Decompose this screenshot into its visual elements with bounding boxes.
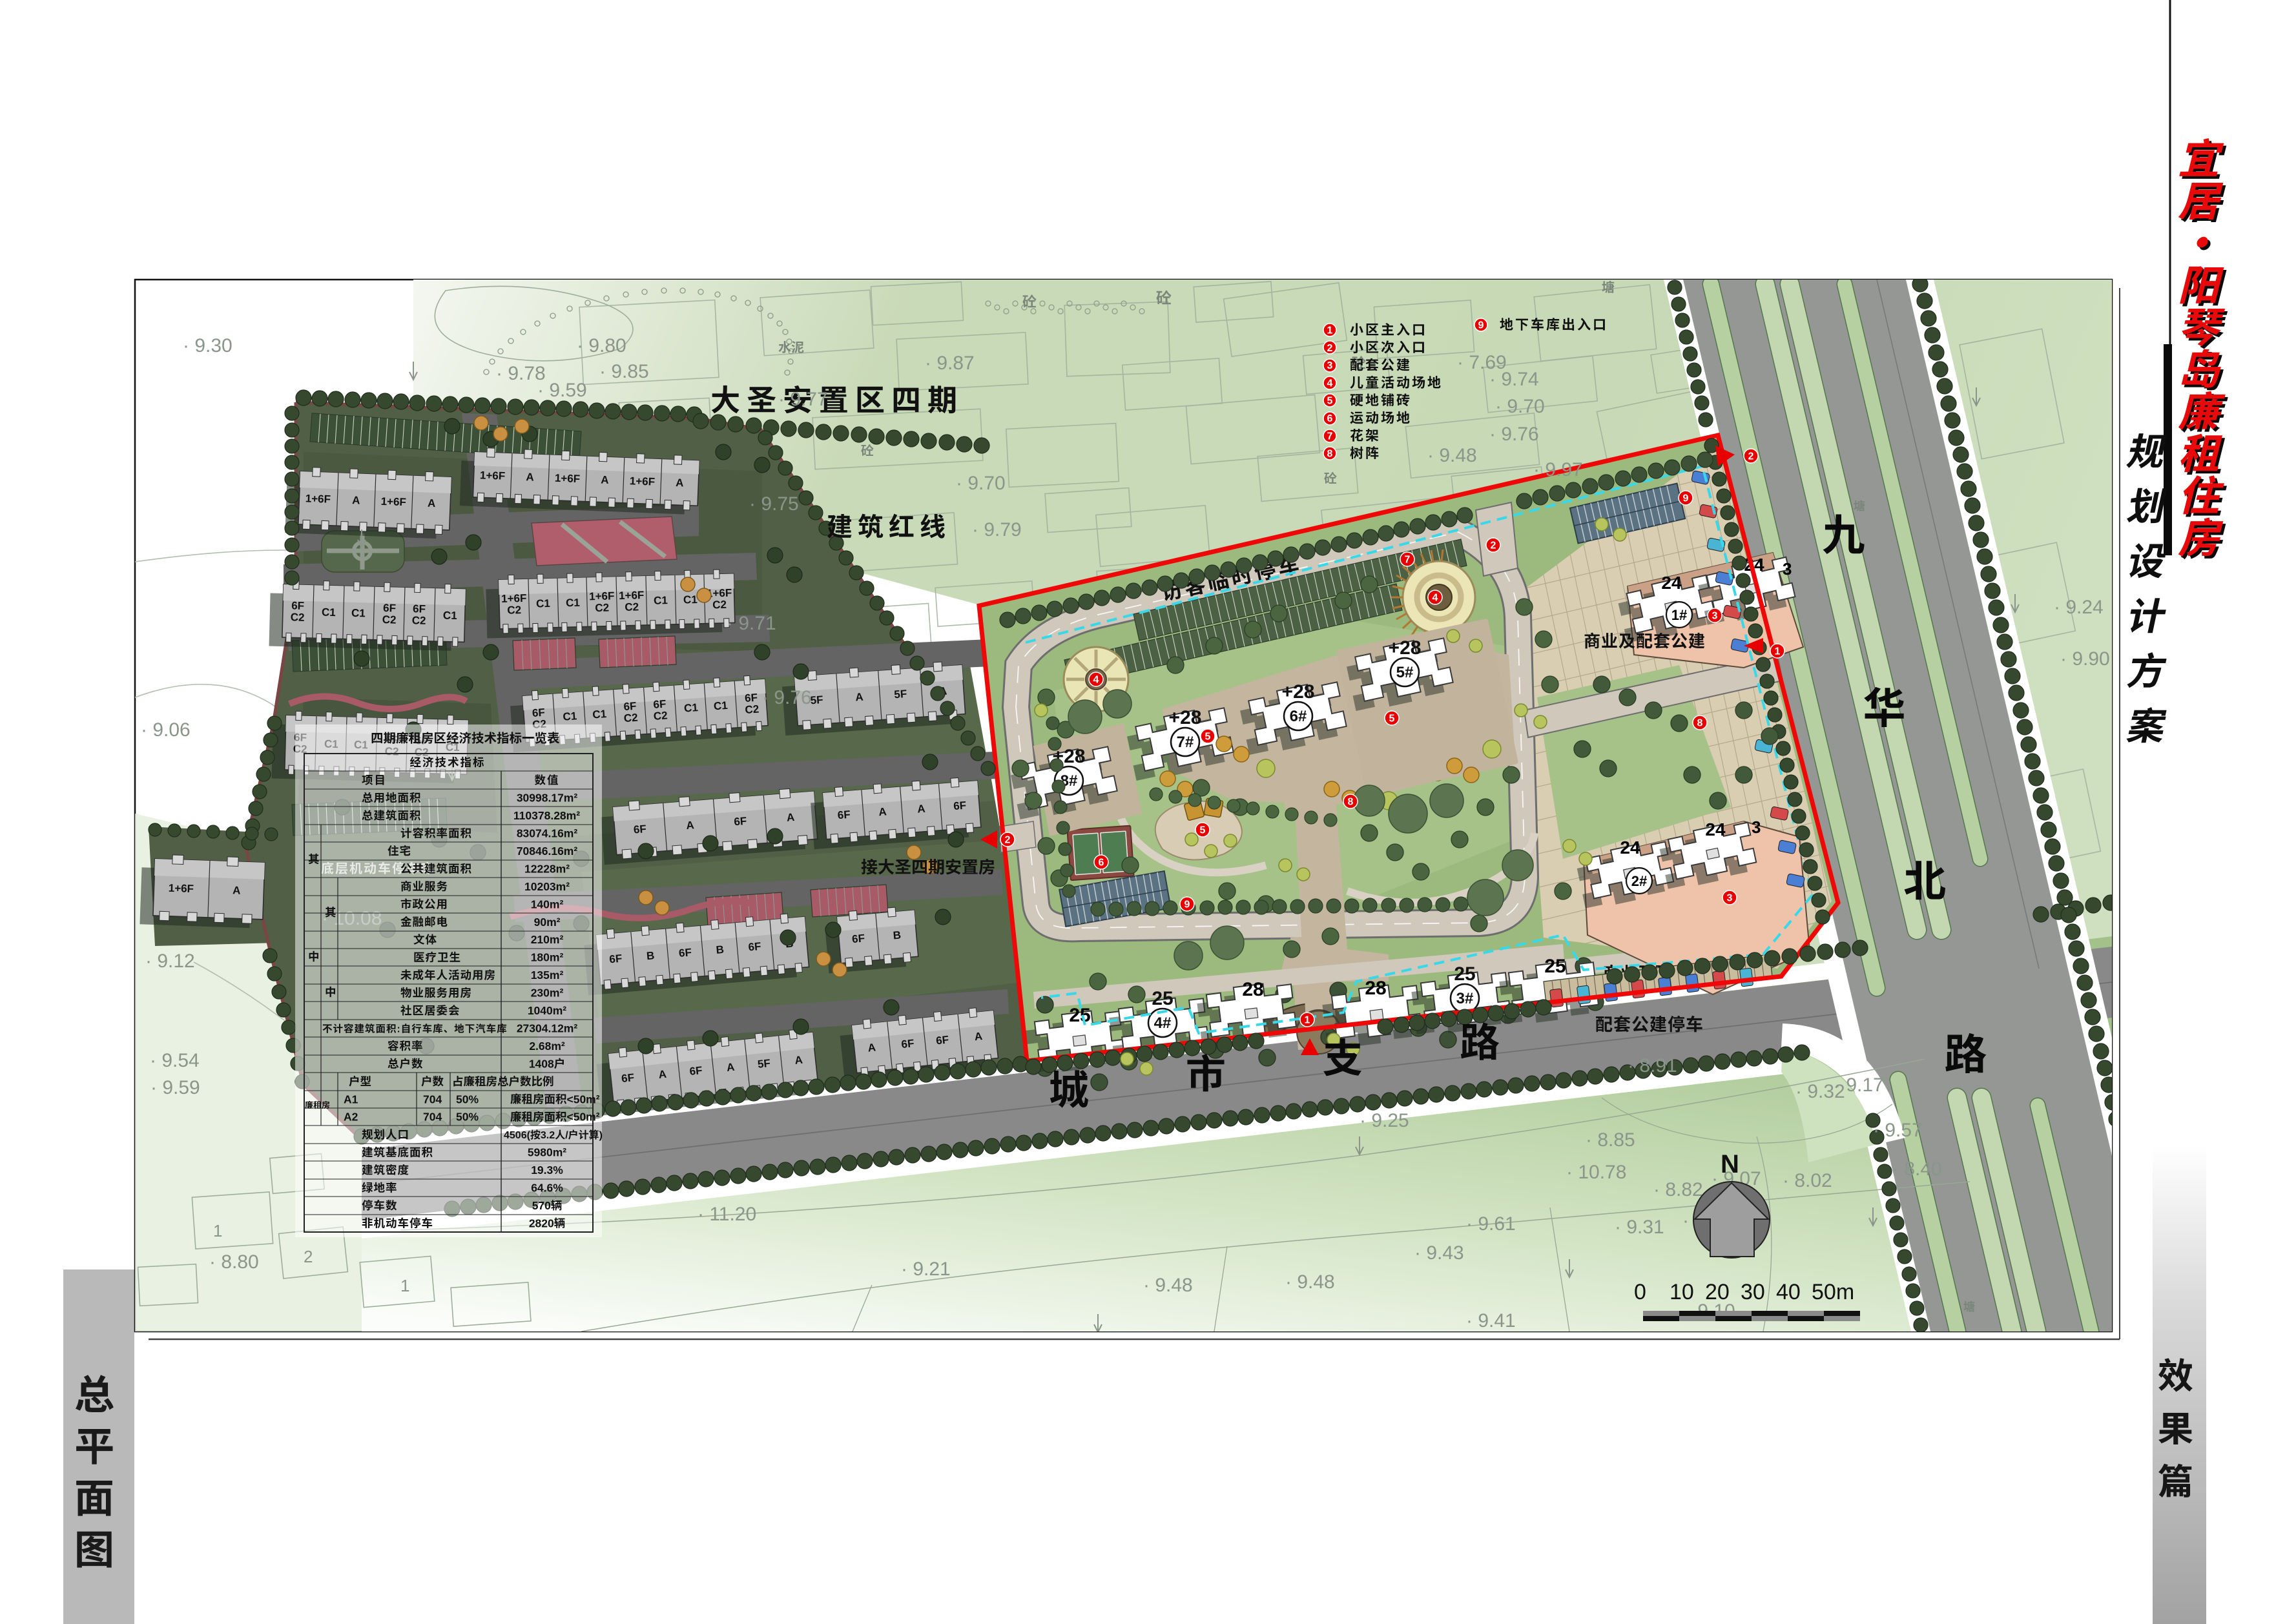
svg-text:· 9.30: · 9.30	[183, 335, 233, 356]
svg-text:· 9.90: · 9.90	[2060, 648, 2110, 670]
svg-text:2: 2	[1327, 343, 1333, 354]
svg-text:10203m²: 10203m²	[524, 880, 570, 893]
svg-text:1+6F: 1+6F	[480, 469, 506, 482]
svg-text:C2: C2	[507, 604, 521, 617]
svg-text:5: 5	[1327, 396, 1333, 407]
svg-text:· 9.76: · 9.76	[1489, 424, 1539, 445]
svg-text:1+6F: 1+6F	[305, 492, 331, 505]
svg-text:· 9.59: · 9.59	[537, 380, 587, 401]
svg-text:+28: +28	[1282, 681, 1315, 703]
svg-text:50m: 50m	[1812, 1280, 1854, 1304]
svg-text:· 9.76: · 9.76	[762, 687, 812, 708]
svg-text:8: 8	[1697, 718, 1703, 729]
svg-text:1: 1	[1305, 1015, 1310, 1026]
svg-text:50%: 50%	[456, 1111, 479, 1124]
svg-text:· 9.31: · 9.31	[1615, 1217, 1664, 1238]
svg-text:1#: 1#	[1671, 607, 1687, 623]
svg-text:10: 10	[1670, 1280, 1694, 1304]
svg-text:1: 1	[1775, 646, 1781, 657]
svg-text:1+6F: 1+6F	[629, 475, 655, 488]
svg-text:· 9.06: · 9.06	[141, 719, 191, 741]
svg-text:4#: 4#	[1154, 1014, 1172, 1032]
svg-text:5F: 5F	[757, 1057, 771, 1071]
svg-text:· 9.48: · 9.48	[1427, 445, 1477, 466]
svg-text:C1: C1	[443, 609, 457, 622]
svg-text:6F: 6F	[621, 1071, 635, 1085]
svg-text:2: 2	[304, 1247, 313, 1266]
svg-text:3: 3	[1327, 360, 1333, 371]
svg-text:6#: 6#	[1290, 708, 1307, 725]
svg-text:1+6F: 1+6F	[589, 590, 615, 602]
svg-text:· 9.24: · 9.24	[2054, 597, 2104, 618]
svg-text:6F: 6F	[851, 932, 865, 945]
svg-text:C2: C2	[712, 599, 727, 612]
svg-text:7: 7	[1405, 555, 1411, 566]
svg-text:· 9.79: · 9.79	[972, 519, 1022, 540]
svg-text:· 9.87: · 9.87	[925, 353, 975, 374]
svg-text:3: 3	[1783, 559, 1792, 579]
svg-text:1+6F: 1+6F	[619, 589, 645, 602]
svg-text:70846.16m²: 70846.16m²	[517, 845, 578, 858]
svg-text:A: A	[676, 477, 684, 489]
svg-text:3.2: 3.2	[541, 1130, 555, 1141]
svg-text:28: 28	[1242, 979, 1263, 1000]
svg-text:2: 2	[1491, 540, 1496, 551]
svg-text:4: 4	[1327, 378, 1333, 389]
svg-text:· 9.71: · 9.71	[727, 613, 776, 634]
svg-text:N: N	[1721, 1150, 1739, 1178]
svg-text:· 9.59: · 9.59	[150, 1077, 200, 1098]
svg-text:6F: 6F	[633, 823, 646, 836]
svg-text:140m²: 140m²	[531, 898, 564, 910]
svg-text:1: 1	[213, 1221, 222, 1240]
svg-text:+28: +28	[1169, 707, 1202, 728]
svg-text:· 9.48: · 9.48	[1285, 1271, 1335, 1293]
svg-text:6F: 6F	[748, 940, 761, 954]
svg-text:<50m²: <50m²	[567, 1093, 600, 1105]
svg-text:A: A	[658, 1068, 667, 1081]
svg-text:A: A	[867, 1041, 876, 1054]
svg-text:9: 9	[1184, 899, 1190, 910]
svg-text:C1: C1	[322, 606, 336, 619]
svg-text:6: 6	[1327, 413, 1333, 424]
svg-text:19.3%: 19.3%	[531, 1164, 563, 1177]
svg-text:7#: 7#	[1177, 734, 1194, 751]
svg-text:12228m²: 12228m²	[524, 862, 570, 875]
svg-text:210m²: 210m²	[531, 933, 564, 946]
svg-text:· 9.85: · 9.85	[599, 361, 649, 382]
svg-text:9: 9	[1683, 493, 1689, 504]
svg-text:6F: 6F	[609, 952, 623, 966]
svg-text:2#: 2#	[1631, 873, 1647, 889]
svg-text:1+6F: 1+6F	[555, 472, 581, 485]
svg-text:3: 3	[1727, 893, 1733, 904]
svg-text:1+6F: 1+6F	[380, 495, 406, 508]
svg-text:20: 20	[1705, 1280, 1730, 1304]
svg-text:· 8.80: · 8.80	[209, 1251, 259, 1273]
svg-text:· 9.32: · 9.32	[1795, 1081, 1845, 1102]
svg-text:180m²: 180m²	[531, 951, 564, 964]
svg-text:7: 7	[1327, 431, 1333, 442]
svg-text::: :	[397, 1023, 400, 1034]
svg-text:704: 704	[423, 1111, 442, 1124]
svg-text:· 9.54: · 9.54	[150, 1050, 200, 1071]
svg-text:6F: 6F	[383, 602, 396, 615]
svg-text:A: A	[794, 1054, 803, 1067]
svg-text:· 9.57: · 9.57	[1873, 1120, 1923, 1141]
svg-text:C2: C2	[382, 613, 397, 626]
svg-text:704: 704	[423, 1093, 442, 1105]
svg-text:1: 1	[400, 1276, 409, 1295]
svg-text:· 9.41: · 9.41	[1466, 1310, 1516, 1331]
svg-text:1408: 1408	[529, 1057, 554, 1070]
svg-text:2: 2	[1748, 451, 1754, 462]
svg-text:B: B	[893, 929, 902, 942]
svg-text:C2: C2	[625, 601, 639, 613]
svg-text:24: 24	[1705, 819, 1726, 839]
svg-text:8: 8	[1327, 449, 1333, 460]
svg-text:C2: C2	[291, 611, 305, 624]
svg-text:2: 2	[1005, 835, 1011, 846]
svg-text:B: B	[716, 943, 725, 956]
svg-text:1040m²: 1040m²	[528, 1004, 566, 1017]
svg-text:230m²: 230m²	[531, 987, 564, 1000]
svg-text:+28: +28	[1389, 637, 1422, 659]
svg-text:A: A	[428, 497, 436, 509]
svg-text:C1: C1	[566, 597, 580, 610]
svg-text:3: 3	[1752, 817, 1761, 837]
svg-text:570: 570	[532, 1199, 551, 1212]
svg-text:A1: A1	[344, 1093, 358, 1105]
svg-text:· 8.85: · 8.85	[1586, 1129, 1635, 1151]
svg-text:6F: 6F	[901, 1037, 915, 1051]
svg-text:24: 24	[1661, 573, 1682, 593]
svg-text:40: 40	[1776, 1280, 1801, 1304]
svg-text:6F: 6F	[678, 946, 692, 960]
svg-text:C1: C1	[592, 708, 607, 721]
svg-text:· 8.02: · 8.02	[1783, 1170, 1832, 1191]
svg-text:C1: C1	[654, 594, 668, 607]
svg-text:5#: 5#	[1396, 664, 1414, 681]
svg-text:C1: C1	[536, 597, 550, 610]
svg-text:2820: 2820	[529, 1217, 554, 1229]
svg-text:3#: 3#	[1456, 990, 1474, 1007]
svg-text:24: 24	[1620, 838, 1640, 858]
svg-text:25: 25	[1152, 988, 1173, 1009]
svg-text:· 8.91: · 8.91	[1628, 1055, 1677, 1076]
svg-text:· 9.43: · 9.43	[1414, 1242, 1464, 1264]
svg-text:· 10.78: · 10.78	[1566, 1162, 1626, 1183]
svg-text:· 9.61: · 9.61	[1466, 1213, 1516, 1235]
svg-text:135m²: 135m²	[531, 969, 564, 982]
svg-text:C2: C2	[595, 602, 609, 615]
svg-text:C1: C1	[683, 701, 698, 714]
svg-text:30: 30	[1741, 1280, 1765, 1304]
svg-text:1+6F: 1+6F	[168, 882, 194, 895]
svg-text:· 8.40: · 8.40	[1892, 1158, 1942, 1180]
svg-text:0: 0	[1634, 1280, 1646, 1304]
svg-text:6F: 6F	[689, 1064, 703, 1078]
svg-text:3: 3	[1712, 611, 1718, 622]
svg-text:6F: 6F	[413, 602, 426, 615]
svg-text:A: A	[917, 803, 926, 816]
svg-text:2.68m²: 2.68m²	[529, 1040, 565, 1053]
svg-text:· 9.80: · 9.80	[577, 335, 626, 356]
svg-text:90m²: 90m²	[534, 916, 561, 929]
svg-text:· 9.12: · 9.12	[145, 951, 195, 972]
svg-text:A: A	[352, 494, 360, 506]
svg-text:A: A	[233, 884, 241, 896]
svg-text:A: A	[974, 1030, 983, 1043]
svg-text:A: A	[601, 474, 609, 486]
svg-text:A: A	[686, 819, 695, 832]
svg-text:4: 4	[1093, 675, 1099, 686]
svg-text:25: 25	[1544, 956, 1566, 977]
svg-text:· 9.75: · 9.75	[749, 493, 799, 515]
svg-text:6F: 6F	[291, 599, 304, 612]
svg-text:C1: C1	[563, 710, 577, 723]
svg-text:1: 1	[1327, 325, 1333, 336]
svg-text:5F: 5F	[894, 688, 907, 701]
svg-text:<50m²: <50m²	[567, 1111, 600, 1124]
svg-text:5: 5	[1205, 732, 1211, 743]
svg-text:8: 8	[1348, 797, 1354, 808]
svg-text:5980m²: 5980m²	[528, 1146, 566, 1159]
svg-text:28: 28	[1365, 978, 1386, 999]
svg-text:A: A	[878, 805, 887, 818]
svg-text:5: 5	[1200, 825, 1206, 836]
svg-text:6F: 6F	[935, 1033, 949, 1047]
svg-text:C2: C2	[411, 614, 426, 627]
svg-text:25: 25	[1454, 963, 1475, 985]
svg-text:): )	[599, 1130, 603, 1141]
svg-text:C1: C1	[713, 699, 728, 712]
svg-text:A: A	[855, 691, 864, 704]
svg-text:· 9.70: · 9.70	[1495, 396, 1545, 417]
svg-text:C2: C2	[653, 709, 668, 722]
svg-text:· 9.97: · 9.97	[1533, 459, 1583, 480]
svg-text:A: A	[526, 471, 534, 483]
svg-text:4: 4	[1432, 593, 1438, 604]
svg-text:6F: 6F	[734, 815, 747, 828]
svg-text:· 9.48: · 9.48	[1143, 1275, 1193, 1296]
svg-text:4506(: 4506(	[504, 1130, 531, 1141]
svg-text:A: A	[786, 811, 795, 824]
svg-text:5: 5	[1389, 714, 1395, 725]
svg-text:C1: C1	[683, 593, 698, 606]
svg-text:B: B	[646, 949, 655, 962]
svg-text:A2: A2	[344, 1111, 358, 1124]
svg-text:6: 6	[1099, 858, 1104, 869]
svg-text:C2: C2	[623, 712, 638, 725]
svg-text:A: A	[726, 1061, 735, 1074]
svg-text:110378.28m²: 110378.28m²	[513, 809, 580, 822]
svg-text:1+6F: 1+6F	[501, 592, 527, 605]
svg-text:· 9.70: · 9.70	[956, 473, 1006, 494]
svg-text:9: 9	[1478, 320, 1484, 331]
svg-text:· 9.77: · 9.77	[778, 389, 828, 410]
svg-text:C1: C1	[351, 607, 366, 620]
svg-text:83074.16m²: 83074.16m²	[517, 827, 578, 840]
svg-text:· 9.25: · 9.25	[1360, 1110, 1409, 1131]
svg-text:30998.17m²: 30998.17m²	[517, 792, 578, 805]
svg-text:6F: 6F	[953, 799, 967, 812]
svg-text:50%: 50%	[456, 1093, 479, 1105]
svg-text:· 11.20: · 11.20	[698, 1204, 756, 1225]
svg-text:· 9.21: · 9.21	[901, 1259, 951, 1280]
svg-text:C2: C2	[745, 703, 760, 716]
svg-text:27304.12m²: 27304.12m²	[517, 1022, 578, 1034]
svg-text:5F: 5F	[810, 694, 823, 706]
svg-text:64.6%: 64.6%	[531, 1182, 563, 1195]
svg-text:· 8.82: · 8.82	[1653, 1179, 1703, 1200]
svg-text:6F: 6F	[837, 808, 851, 821]
svg-text:· 7.69: · 7.69	[1457, 352, 1507, 373]
svg-text:/: /	[565, 1130, 568, 1141]
